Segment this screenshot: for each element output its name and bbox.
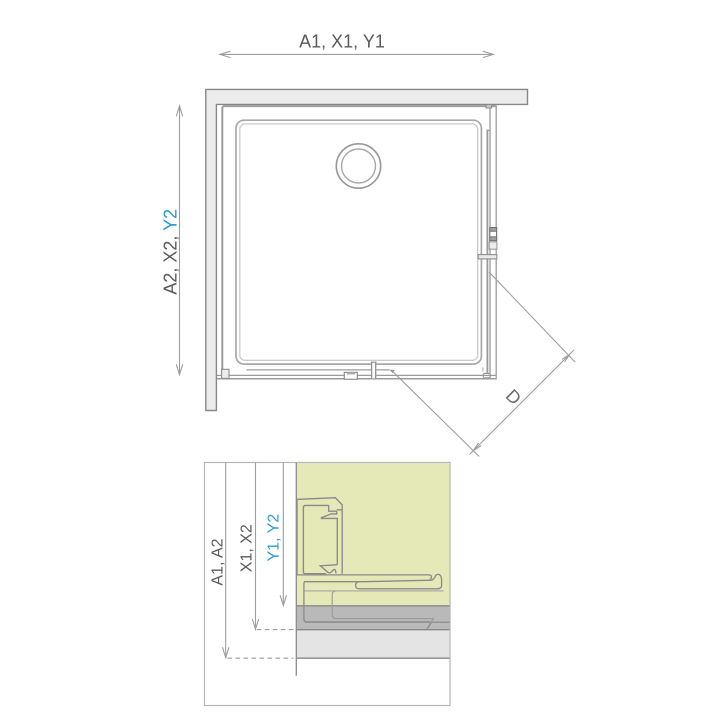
svg-text:A1, A2: A1, A2 (209, 538, 226, 585)
svg-text:A2, X2, Y2: A2, X2, Y2 (160, 209, 180, 295)
svg-text:D: D (502, 385, 525, 408)
svg-text:X1, X2: X1, X2 (239, 524, 256, 572)
svg-text:Y1, Y2: Y1, Y2 (266, 514, 283, 562)
svg-text:A1, X1, Y1: A1, X1, Y1 (299, 31, 385, 51)
